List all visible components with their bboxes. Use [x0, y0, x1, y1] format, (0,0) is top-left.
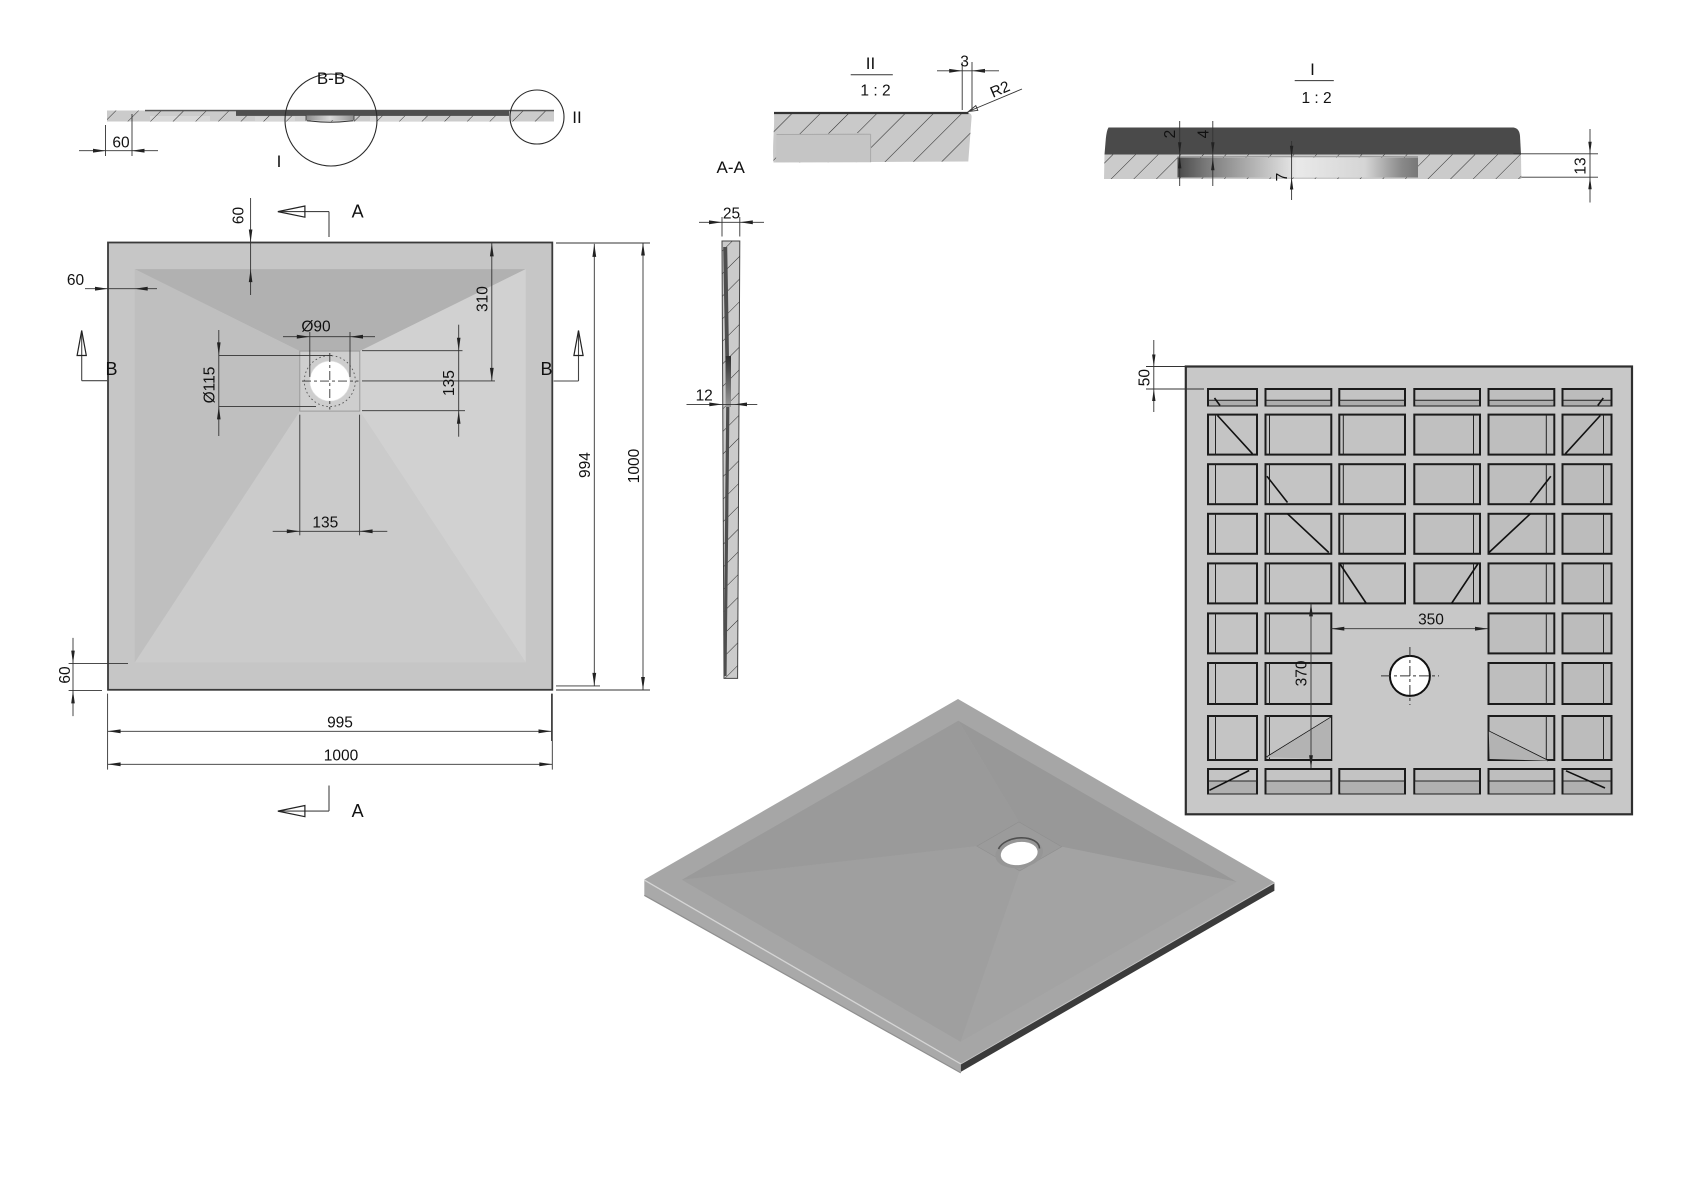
- svg-text:350: 350: [1418, 612, 1444, 629]
- svg-text:1 : 2: 1 : 2: [860, 83, 890, 100]
- svg-text:II: II: [866, 54, 875, 73]
- svg-text:25: 25: [723, 206, 740, 223]
- svg-text:310: 310: [474, 286, 491, 312]
- svg-text:1000: 1000: [626, 448, 643, 483]
- svg-text:B-B: B-B: [317, 69, 345, 88]
- svg-text:4: 4: [1195, 129, 1212, 138]
- svg-text:2: 2: [1162, 130, 1179, 139]
- svg-text:Ø90: Ø90: [301, 319, 331, 336]
- svg-text:12: 12: [696, 388, 713, 405]
- svg-text:135: 135: [312, 514, 338, 531]
- svg-text:60: 60: [112, 134, 130, 151]
- svg-text:B: B: [105, 359, 117, 379]
- svg-text:60: 60: [57, 666, 74, 684]
- svg-text:60: 60: [231, 207, 248, 225]
- svg-text:B: B: [540, 359, 552, 379]
- svg-text:135: 135: [441, 370, 458, 396]
- svg-text:1 : 2: 1 : 2: [1302, 90, 1332, 107]
- svg-text:A: A: [352, 801, 364, 821]
- svg-text:60: 60: [67, 272, 85, 289]
- svg-text:1000: 1000: [324, 748, 359, 765]
- svg-text:3: 3: [960, 54, 969, 71]
- svg-text:A-A: A-A: [717, 158, 746, 177]
- svg-text:Ø115: Ø115: [202, 367, 219, 404]
- svg-text:370: 370: [1294, 660, 1311, 686]
- svg-text:I: I: [277, 152, 282, 171]
- svg-text:I: I: [1310, 60, 1315, 79]
- svg-text:13: 13: [1573, 157, 1590, 174]
- svg-text:50: 50: [1136, 369, 1153, 387]
- svg-text:995: 995: [327, 715, 353, 732]
- svg-text:A: A: [352, 202, 364, 222]
- svg-text:7: 7: [1274, 173, 1291, 182]
- svg-text:994: 994: [577, 452, 594, 478]
- svg-text:II: II: [572, 108, 581, 127]
